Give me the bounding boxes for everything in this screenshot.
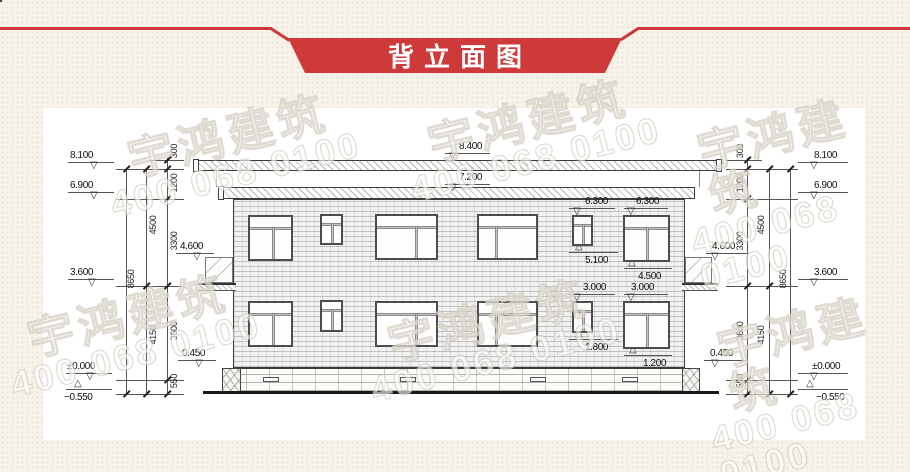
watermark-phone: 400 068 0100 (708, 373, 910, 472)
watermark-phone: 400 068 0100 (367, 311, 624, 408)
watermark: 宇鸿建筑400 068 0100 (384, 269, 625, 402)
watermark-text: 宇鸿建筑 (713, 286, 910, 419)
watermark-phone: 400 068 0100 (107, 126, 364, 223)
watermark-text: 宇鸿建筑 (424, 69, 657, 169)
watermark-text: 宇鸿建筑 (24, 264, 257, 364)
watermark-text: 宇鸿建筑 (384, 269, 617, 369)
watermark-phone: 400 068 0100 (7, 306, 264, 403)
watermark: 宇鸿建筑400 068 0100 (713, 286, 910, 472)
watermark: 宇鸿建筑400 068 0100 (124, 84, 365, 217)
watermark-layer: 宇鸿建筑400 068 0100宇鸿建筑400 068 0100宇鸿建筑400 … (0, 0, 910, 472)
watermark: 宇鸿建筑400 068 0100 (424, 69, 665, 202)
watermark-text: 宇鸿建筑 (124, 84, 357, 184)
page: 背立面图 30012003300360055045004150865030012… (0, 0, 910, 472)
watermark-text: 宇鸿建筑 (693, 83, 909, 221)
watermark-phone: 400 068 0100 (688, 171, 910, 296)
watermark: 宇鸿建筑400 068 0100 (693, 83, 910, 289)
watermark-phone: 400 068 0100 (407, 111, 664, 208)
watermark: 宇鸿建筑400 068 0100 (24, 264, 265, 397)
